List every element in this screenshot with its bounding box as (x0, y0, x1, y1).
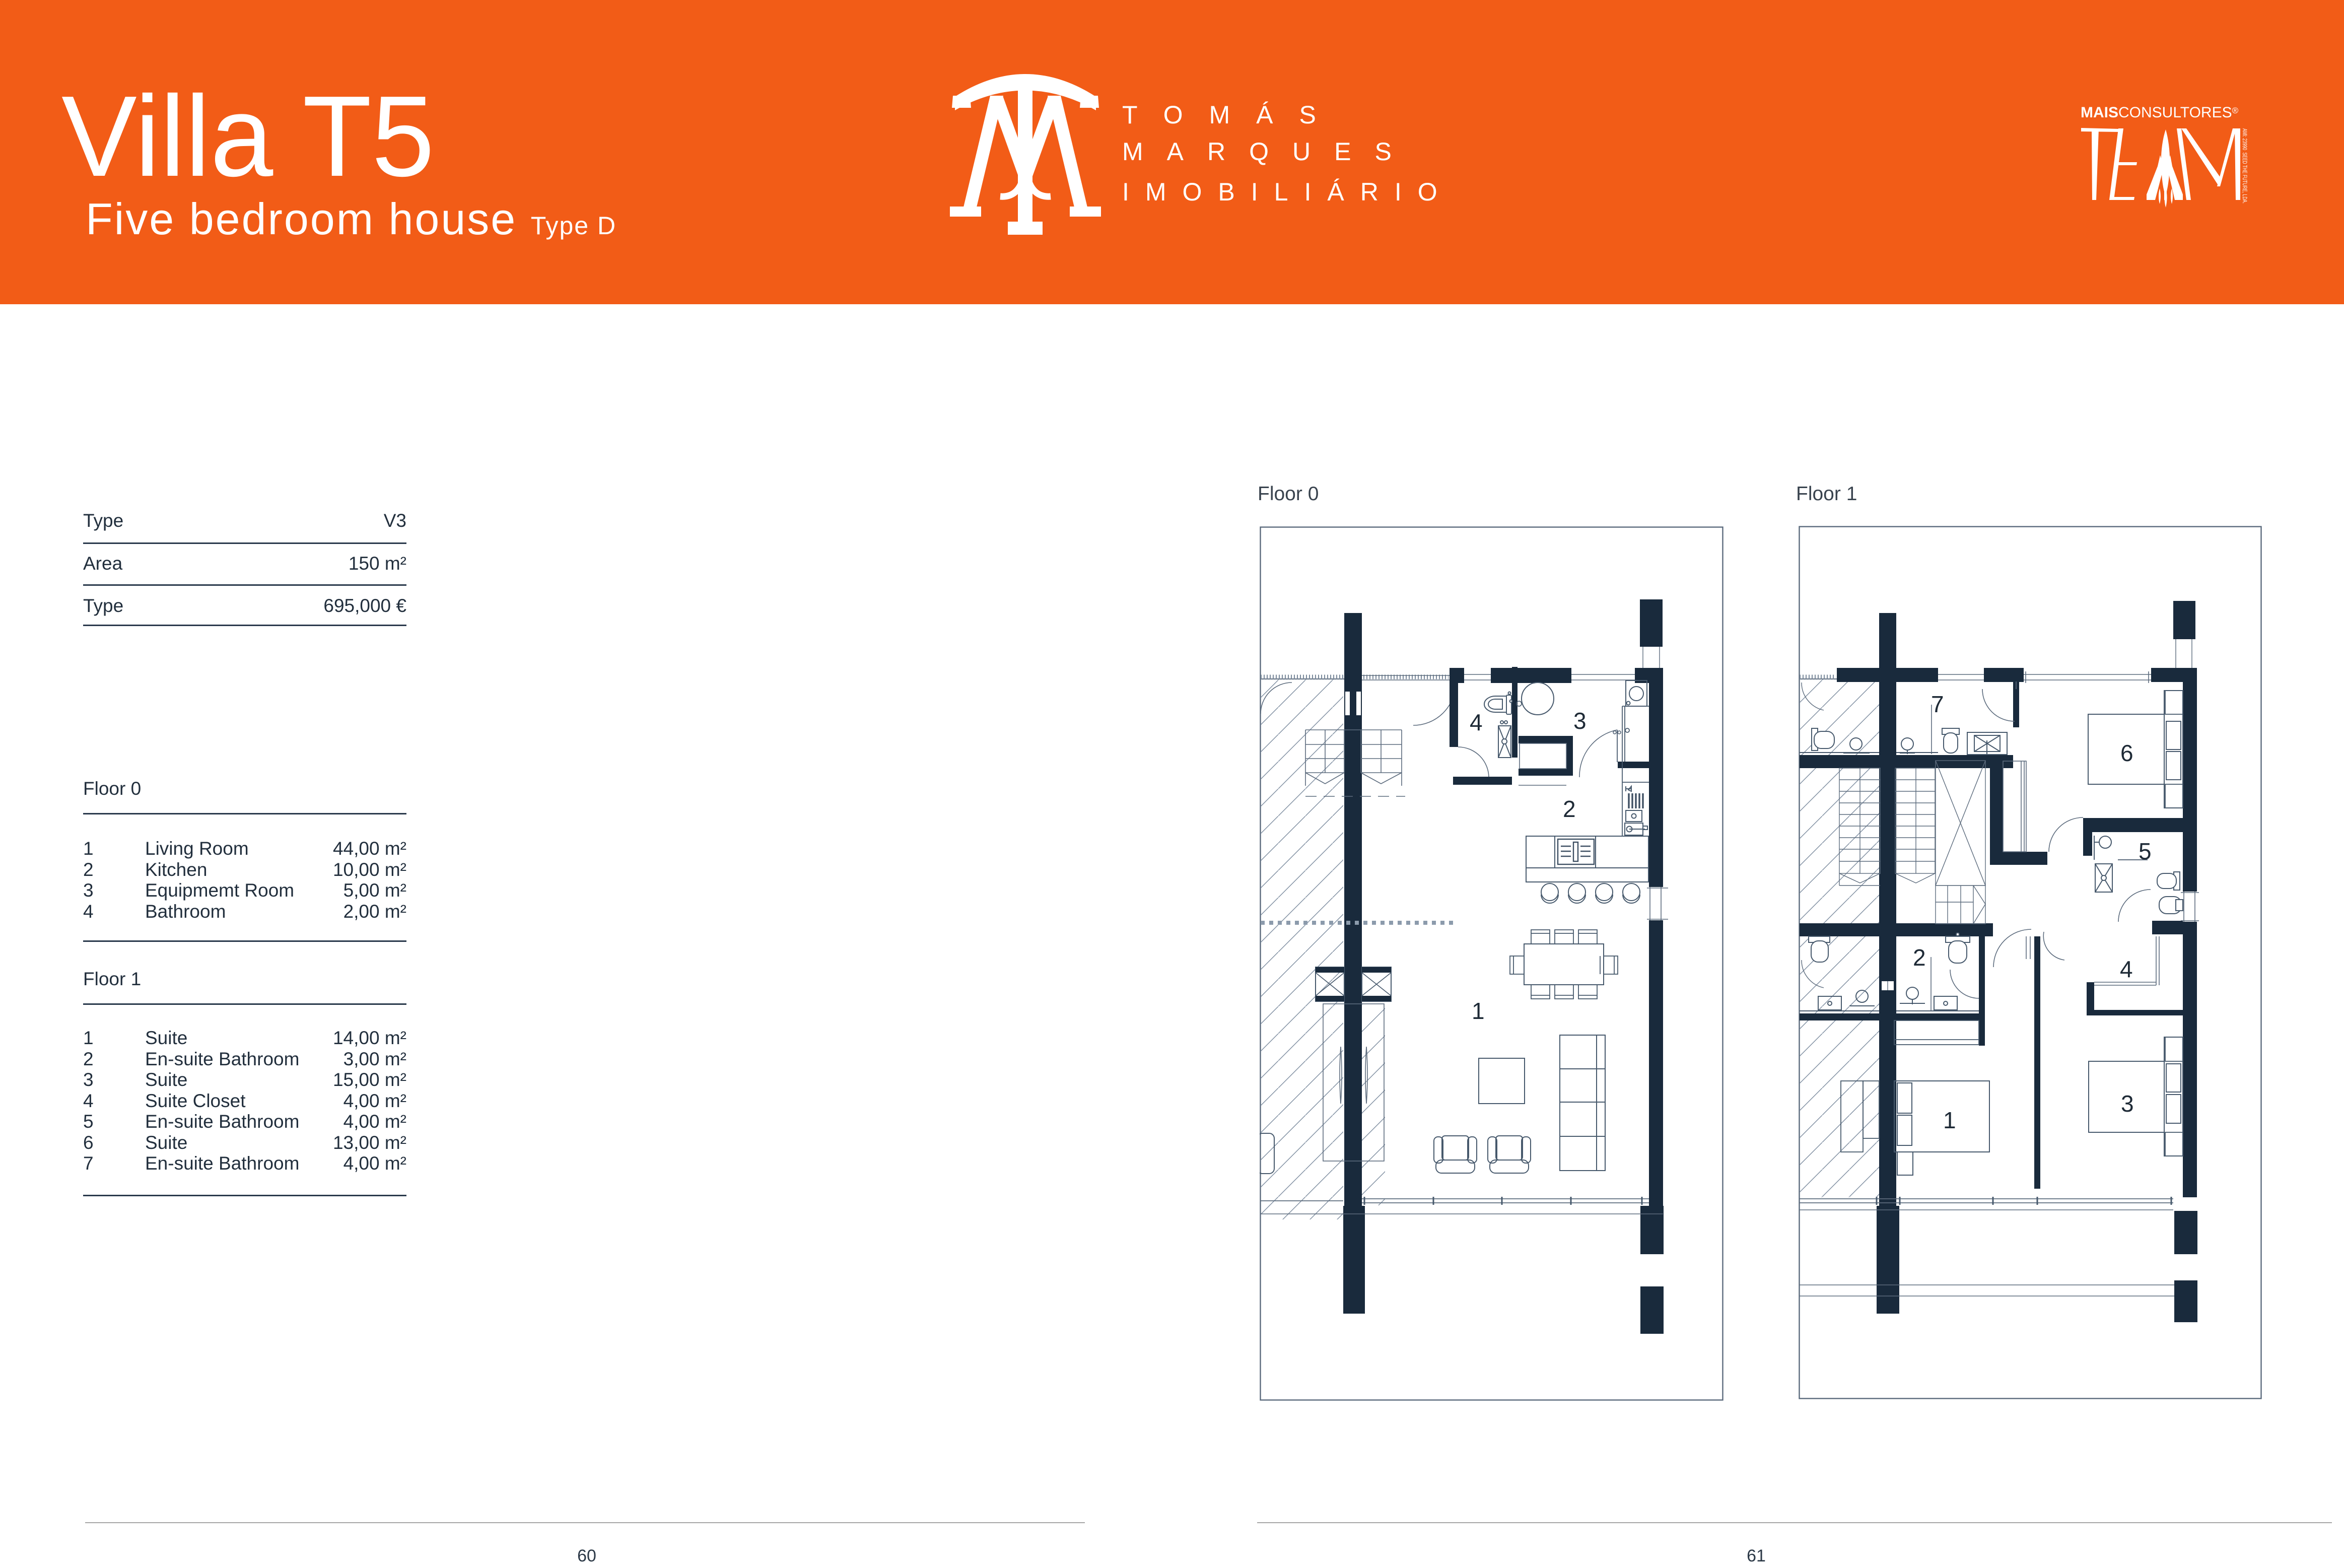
svg-text:5: 5 (2139, 838, 2152, 864)
svg-text:7: 7 (1931, 691, 1944, 717)
svg-text:3: 3 (2121, 1090, 2134, 1117)
svg-text:1: 1 (1943, 1107, 1956, 1133)
svg-text:4: 4 (2120, 956, 2133, 982)
svg-text:6: 6 (2120, 740, 2133, 766)
svg-text:1: 1 (1472, 998, 1485, 1024)
svg-text:2: 2 (1913, 944, 1926, 971)
svg-text:2: 2 (1563, 796, 1576, 822)
svg-text:4: 4 (1470, 709, 1483, 735)
svg-text:3: 3 (1573, 708, 1587, 734)
